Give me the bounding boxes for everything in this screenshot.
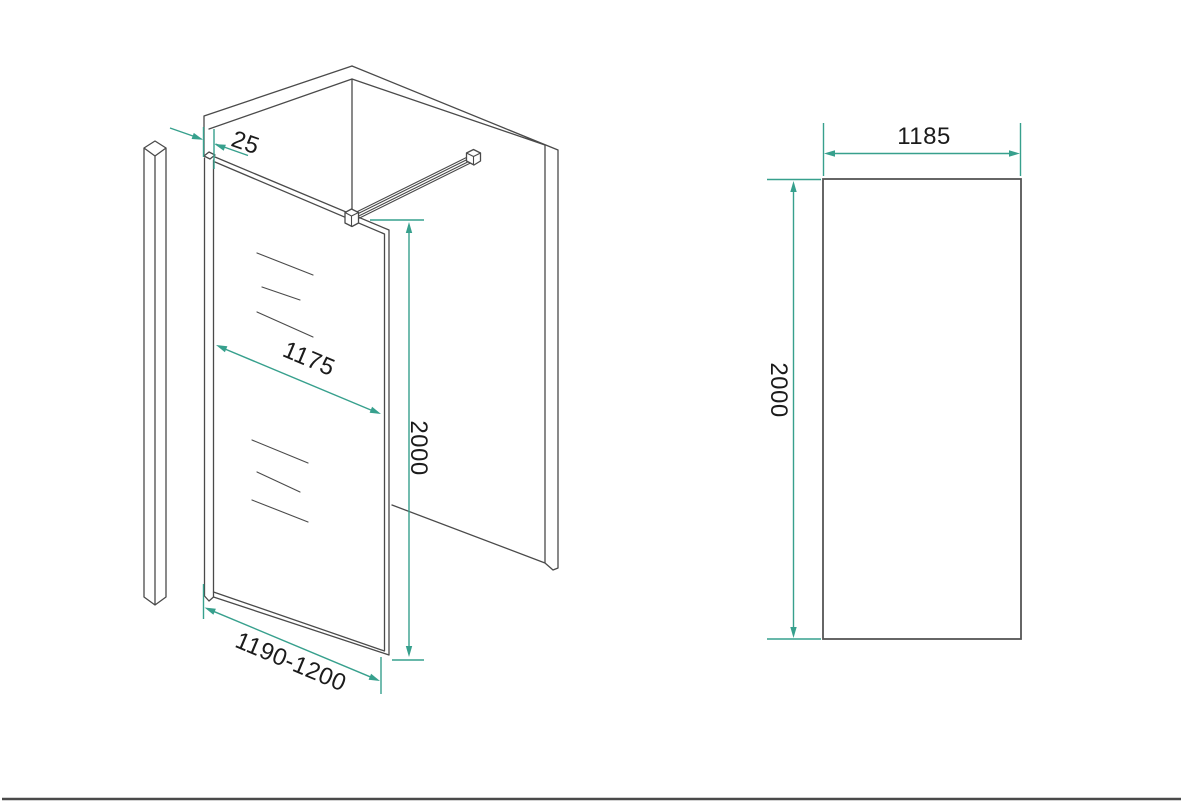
dim-profile-width-arrow-left [192,133,203,140]
dim-front-width-arrow-left [824,150,835,156]
dim-total-width-arrow-right [369,674,380,681]
dim-height-perspective-label: 2000 [405,420,432,475]
dim-profile-width-arrow-right [215,144,226,151]
technical-drawing-page: 25 1175 2000 1190-1200 [0,0,1181,803]
dim-height-perspective-arrow-top [406,222,412,233]
dim-front-height-arrow-bottom [790,627,796,638]
dim-front-width: 1185 [824,123,1021,176]
dim-front-height: 2000 [765,180,821,640]
back-wall-left [204,66,352,212]
dim-front-height-label: 2000 [765,362,792,417]
dim-profile-width-label: 25 [228,126,263,161]
support-bar-glass-connector [345,209,359,227]
dim-glass-width-arrow-left [216,345,227,352]
dim-glass-width: 1175 [216,336,381,414]
perspective-view: 25 1175 2000 1190-1200 [144,66,558,697]
support-bar [353,155,475,220]
back-wall-right [352,66,558,570]
support-bar-wall-connector [467,150,481,166]
dim-front-width-label: 1185 [897,123,951,150]
dim-total-width-label: 1190-1200 [231,627,350,697]
wall-profile [204,152,215,601]
shower-screen-drawing: 25 1175 2000 1190-1200 [0,0,1181,803]
dim-height-perspective-arrow-bottom [406,646,412,657]
front-glass-outline [823,179,1021,639]
dim-glass-width-arrow-right [370,407,381,414]
glass-reflection-lines [252,253,313,522]
side-wall-panel [144,141,166,605]
dim-total-width-arrow-left [205,608,216,615]
front-view: 1185 2000 [765,123,1021,639]
dim-height-perspective: 2000 [370,220,432,660]
dim-total-width-lines [204,584,382,694]
dim-front-width-arrow-right [1009,150,1020,156]
dim-front-height-arrow-top [790,181,796,192]
